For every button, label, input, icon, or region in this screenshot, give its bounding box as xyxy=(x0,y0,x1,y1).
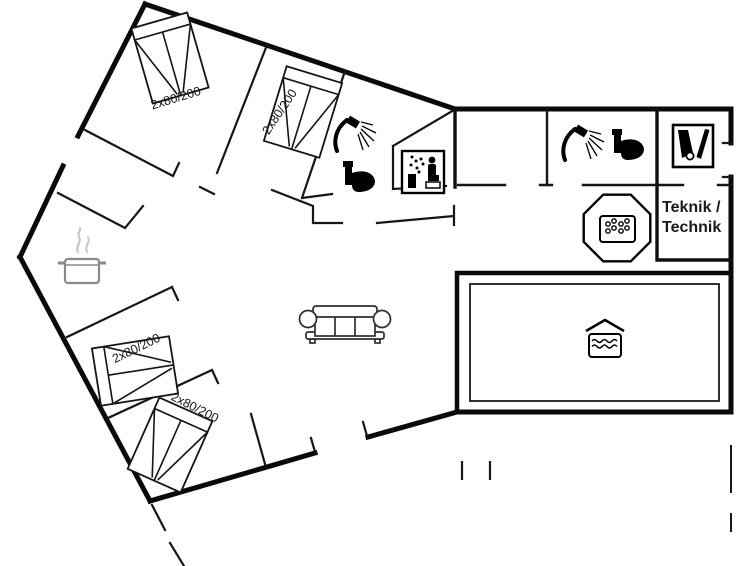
floor-plan-svg: Teknik / Technik xyxy=(0,0,755,566)
technical-room-label-line2: Technik xyxy=(662,219,721,236)
whirlpool-icon xyxy=(584,195,651,262)
pool-room xyxy=(457,273,731,412)
vacuum-cleaner-icon xyxy=(673,125,713,167)
floor-plan-page: Teknik / Technik xyxy=(0,0,755,566)
swimming-pool-icon xyxy=(586,320,624,357)
site-marks xyxy=(152,445,731,566)
shower-icon xyxy=(563,128,604,160)
technical-room-label-line1: Teknik / xyxy=(662,199,721,216)
toilet-icon xyxy=(343,161,375,192)
sauna-icon xyxy=(402,151,444,193)
cooking-pot-icon xyxy=(58,228,106,283)
shower-icon xyxy=(335,119,376,151)
sofa-icon xyxy=(300,306,391,343)
toilet-icon xyxy=(612,129,644,160)
technical-room-label: Teknik / Technik xyxy=(662,199,721,236)
